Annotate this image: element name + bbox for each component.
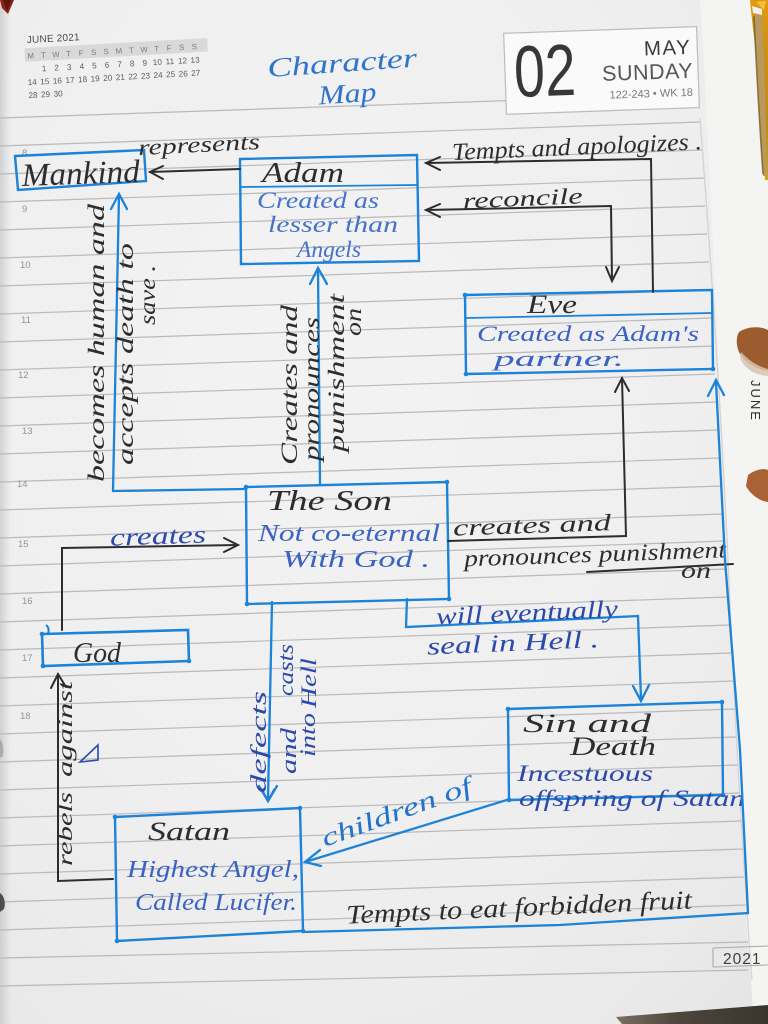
svg-text:lesser than: lesser than xyxy=(268,212,398,238)
svg-text:18: 18 xyxy=(20,711,31,722)
svg-text:13: 13 xyxy=(22,426,33,437)
svg-text:21: 21 xyxy=(116,73,126,83)
svg-text:10: 10 xyxy=(153,58,163,68)
svg-text:11: 11 xyxy=(165,57,174,66)
svg-text:rebels: rebels xyxy=(53,792,77,866)
svg-text:15: 15 xyxy=(40,77,50,87)
svg-text:on: on xyxy=(681,558,711,584)
svg-text:02: 02 xyxy=(513,28,578,112)
svg-text:Called Lucifer.: Called Lucifer. xyxy=(135,889,297,916)
svg-text:12: 12 xyxy=(178,56,188,66)
svg-text:W: W xyxy=(52,50,60,59)
svg-text:12: 12 xyxy=(18,370,29,381)
svg-text:16: 16 xyxy=(22,596,33,607)
svg-text:Angels: Angels xyxy=(295,237,361,263)
svg-text:M: M xyxy=(115,46,122,55)
svg-text:Created as: Created as xyxy=(257,188,379,214)
svg-text:partner.: partner. xyxy=(490,346,624,371)
svg-text:27: 27 xyxy=(191,68,201,78)
svg-text:Satan: Satan xyxy=(148,816,230,846)
svg-text:S: S xyxy=(191,42,197,51)
svg-text:creates and: creates and xyxy=(453,510,612,542)
svg-text:offspring of Satan: offspring of Satan xyxy=(519,786,745,812)
svg-text:S: S xyxy=(179,43,185,52)
svg-text:Hell: Hell xyxy=(296,658,321,709)
svg-text:Adam: Adam xyxy=(260,158,344,189)
svg-text:into: into xyxy=(295,713,320,757)
svg-text:29: 29 xyxy=(41,90,51,100)
svg-text:T: T xyxy=(66,49,71,58)
svg-text:15: 15 xyxy=(18,539,29,550)
svg-text:Created as Adam's: Created as Adam's xyxy=(477,321,699,346)
svg-text:W: W xyxy=(140,45,148,54)
svg-text:22: 22 xyxy=(128,72,138,82)
svg-text:F: F xyxy=(167,44,172,53)
svg-text:20: 20 xyxy=(103,73,113,83)
svg-text:25: 25 xyxy=(166,70,176,80)
svg-text:18: 18 xyxy=(78,75,88,85)
svg-text:The Son: The Son xyxy=(267,486,392,517)
svg-text:Map: Map xyxy=(316,77,377,111)
svg-text:16: 16 xyxy=(53,76,63,86)
svg-text:17: 17 xyxy=(22,653,33,664)
svg-text:2021: 2021 xyxy=(723,951,761,968)
svg-text:SUNDAY: SUNDAY xyxy=(602,59,694,86)
svg-text:With God .: With God . xyxy=(282,546,430,573)
svg-text:God: God xyxy=(73,638,122,669)
svg-text:JUNE: JUNE xyxy=(748,380,763,422)
svg-text:11: 11 xyxy=(21,315,31,326)
svg-text:save .: save . xyxy=(135,265,161,325)
svg-text:14: 14 xyxy=(27,78,37,88)
svg-text:T: T xyxy=(129,46,134,55)
svg-text:F: F xyxy=(78,48,83,57)
svg-text:30: 30 xyxy=(53,89,63,99)
svg-text:23: 23 xyxy=(141,71,151,81)
svg-text:17: 17 xyxy=(65,76,75,86)
svg-text:10: 10 xyxy=(20,260,31,271)
svg-text:creates: creates xyxy=(110,521,207,551)
svg-text:on: on xyxy=(341,308,367,336)
svg-text:Eve: Eve xyxy=(526,289,578,319)
svg-text:9: 9 xyxy=(22,204,27,215)
svg-text:S: S xyxy=(91,48,97,57)
svg-text:casts: casts xyxy=(273,644,298,696)
svg-text:Not co-eternal: Not co-eternal xyxy=(257,520,441,547)
svg-text:Incestuous: Incestuous xyxy=(516,761,653,787)
svg-text:becomes human and: becomes human and xyxy=(84,204,110,482)
svg-text:24: 24 xyxy=(153,71,163,81)
svg-text:13: 13 xyxy=(190,56,200,66)
svg-text:28: 28 xyxy=(28,91,38,101)
svg-text:MAY: MAY xyxy=(643,36,691,61)
svg-text:Mankind: Mankind xyxy=(20,154,141,194)
svg-text:14: 14 xyxy=(17,479,28,490)
svg-text:pronounces: pronounces xyxy=(299,317,325,464)
svg-text:defects: defects xyxy=(246,691,271,793)
svg-text:Highest Angel,: Highest Angel, xyxy=(126,856,299,883)
svg-text:19: 19 xyxy=(90,74,100,84)
svg-text:S: S xyxy=(103,47,109,56)
svg-text:T: T xyxy=(41,51,46,60)
svg-text:M: M xyxy=(27,51,34,60)
svg-text:against: against xyxy=(53,679,77,777)
svg-text:26: 26 xyxy=(178,69,188,79)
svg-text:Death: Death xyxy=(569,731,656,761)
svg-text:reconcile: reconcile xyxy=(462,183,583,213)
svg-text:T: T xyxy=(154,44,159,53)
